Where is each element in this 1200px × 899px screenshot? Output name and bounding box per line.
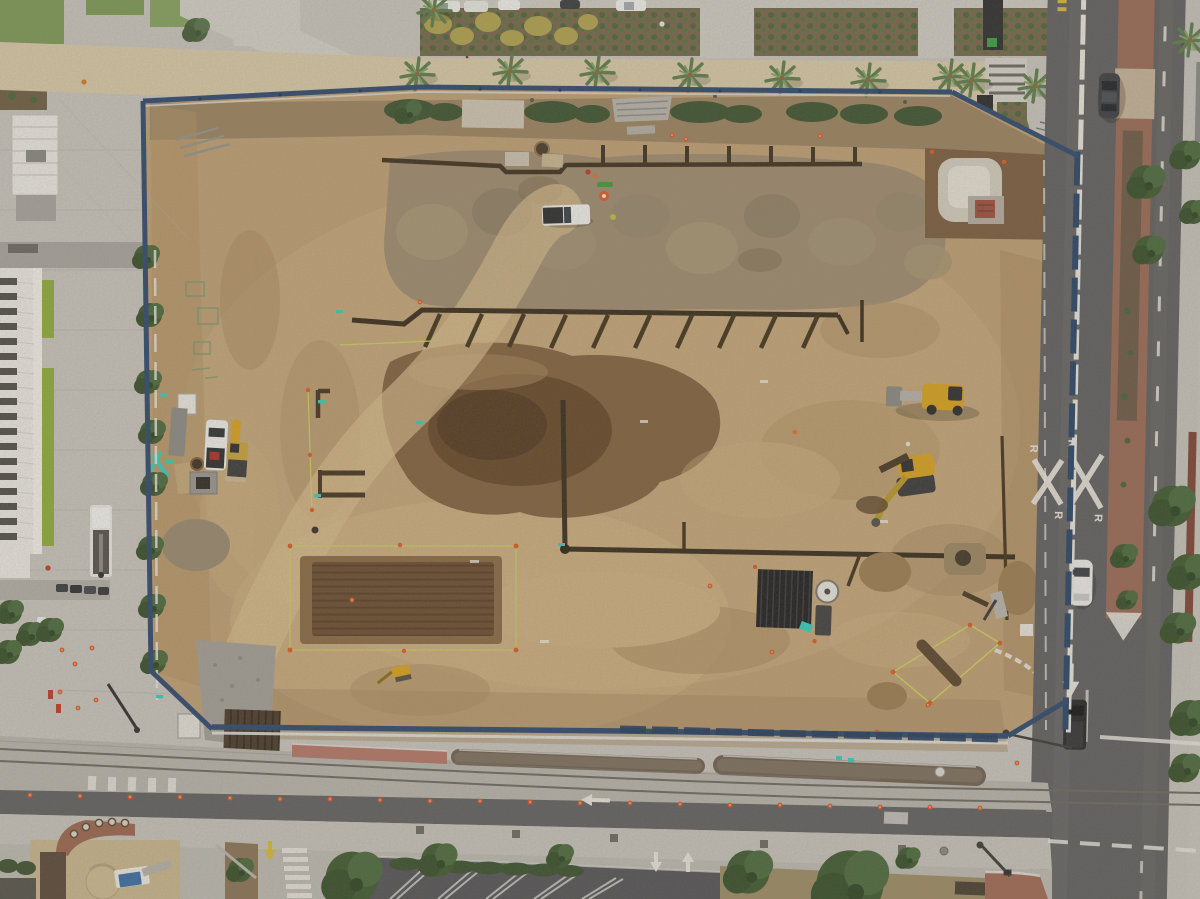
aerial-photo: R R R R [0,0,1200,899]
aerial-scene: R R R R [0,0,1200,899]
photo-tint [0,0,1200,899]
